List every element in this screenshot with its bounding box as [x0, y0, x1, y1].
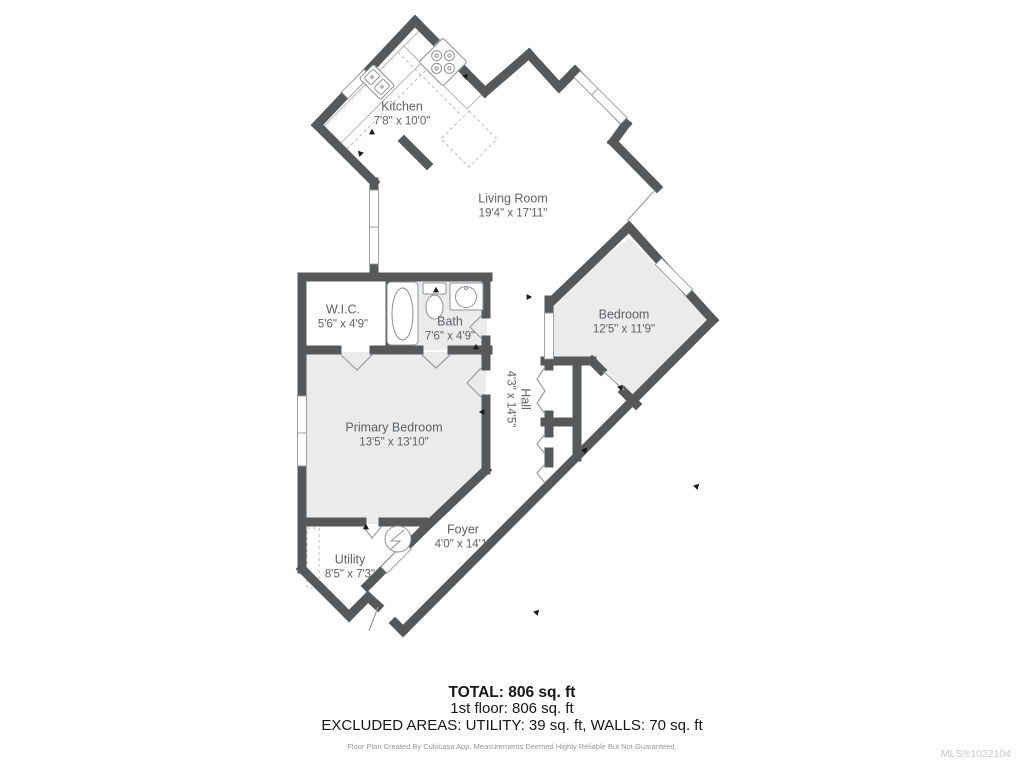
area-summary: TOTAL: 806 sq. ft 1st floor: 806 sq. ft … — [0, 684, 1024, 734]
first-floor-text: 1st floor: 806 sq. ft — [0, 701, 1024, 718]
disclaimer-text: Floor Plan Created By Cubicasa App. Meas… — [0, 742, 1024, 751]
mls-number: MLS®1022104 — [941, 748, 1011, 760]
closet-b-door — [537, 434, 545, 454]
hall-foyer-opening — [537, 464, 545, 483]
entry-door — [369, 607, 378, 631]
living-room-window — [574, 71, 627, 124]
closet-a-door — [537, 367, 545, 414]
excluded-areas-text: EXCLUDED AREAS: UTILITY: 39 sq. ft, WALL… — [0, 718, 1024, 735]
bedroom-living-door — [627, 190, 655, 221]
living-room-west-window — [370, 190, 379, 264]
total-area-text: TOTAL: 806 sq. ft — [0, 684, 1024, 701]
floor-plan-page: Kitchen 7'8" x 10'0" Living Room 19'4" x… — [0, 0, 1024, 768]
floor-plan-drawing — [0, 0, 1024, 768]
water-heater-icon — [385, 526, 411, 552]
primary-bedroom-window — [298, 396, 307, 466]
bathtub-icon — [387, 282, 418, 345]
hall-window — [545, 313, 554, 359]
bathroom-sink-icon — [450, 283, 483, 310]
